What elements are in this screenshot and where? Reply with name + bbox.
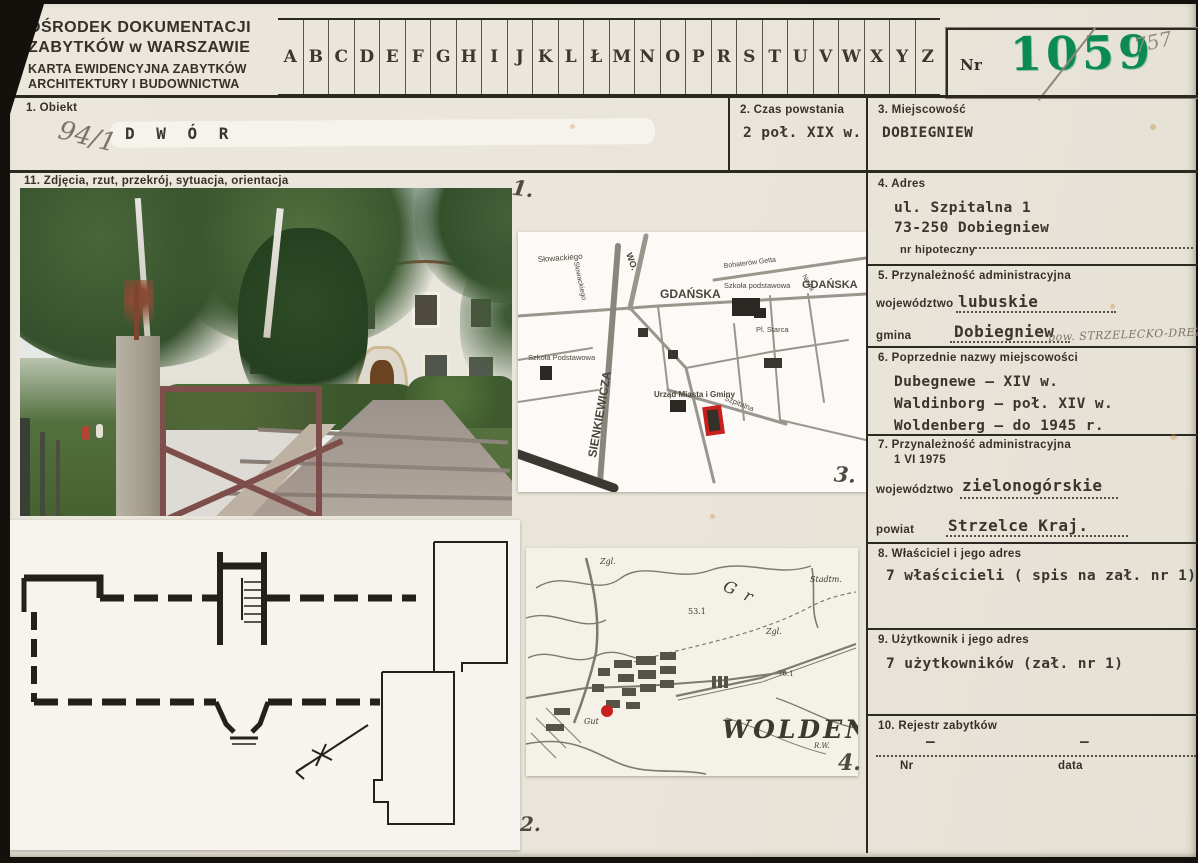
card-type-line2: ARCHITEKTURY I BUDOWNICTWA [28,77,239,92]
highlighted-building [704,407,722,434]
register-dash-2: – [1080,734,1089,750]
alphabet-index-strip: ABCDEFGHIJKLŁMNOPRSTUVWXYZ [278,18,940,96]
former-name-2: Waldinborg – poł. XIV w. [894,396,1113,412]
nr-hipoteczny-label: nr hipoteczny [900,244,975,256]
section10-label: 10. Rejestr zabytków [878,720,997,732]
alphabet-letter: N [635,20,661,94]
powiat-pencil-note: pow. STRZELECKO-DREZD. [1048,325,1198,344]
photo-fence [56,440,60,516]
section8-label: 8. Właściciel i jego adres [878,548,1021,560]
owner-value: 7 właścicieli ( spis na zał. nr 1) [886,568,1196,584]
alphabet-letter: M [610,20,636,94]
dotted-line [975,246,1193,249]
dotted-line [946,534,1128,537]
dotted-line [960,496,1118,499]
topo-lake-label: Gr [720,576,765,610]
alphabet-letter: W [839,20,865,94]
topo-label: Zgl. [599,557,616,566]
address-line2: 73-250 Dobiegniew [894,220,1049,236]
wojewodztwo-label: województwo [876,298,953,310]
topo-label: Zgl. [765,627,782,636]
map-street-label: Bohaterów Getta [723,257,776,270]
map-poi-label: Szkoła Podstawowa [528,353,596,362]
topo-label: Gut [584,717,600,726]
map-street-label: GDAŃSKA [660,286,721,301]
map-street-label: Słowackiego [572,261,587,301]
topo-highlight-dot [601,705,613,717]
city-map: WO. Słowackiego Słowackiego GDAŃSKA GDAŃ… [518,232,866,492]
alphabet-letter: Y [890,20,916,94]
powiat-label: powiat [876,524,914,536]
city-map-sheet: WO. Słowackiego Słowackiego GDAŃSKA GDAŃ… [518,232,866,492]
alphabet-letter: F [406,20,432,94]
column-divider [866,98,868,853]
section3-label: 3. Miejscowość [878,104,966,116]
photo-post-finial [134,284,139,340]
user-value: 7 użytkowników (zał. nr 1) [886,656,1123,672]
section1-label: 1. Obiekt [26,102,77,114]
section5-label: 5. Przynależność administracyjna [878,270,1071,282]
card-type-line1: KARTA EWIDENCYJNA ZABYTKÓW [28,62,247,77]
alphabet-letter: U [788,20,814,94]
section9-label: 9. Użytkownik i jego adres [878,634,1029,646]
section7-label: 7. Przynależność administracyjna [878,439,1071,451]
alphabet-letter: X [865,20,891,94]
annotation-4: 4. [838,750,861,776]
divider [868,714,1198,716]
former-name-3: Woldenberg – do 1945 r. [894,418,1104,434]
map-poi-label: Urząd Miasta i Gminy [654,390,735,399]
divider [868,628,1198,630]
alphabet-letter: H [457,20,483,94]
topo-label: R.W. [813,742,830,750]
former-name-1: Dubegnewe – XIV w. [894,374,1058,390]
alphabet-letter: V [814,20,840,94]
map-poi-label: Pl. Starca [756,325,789,334]
alphabet-letter: Ł [584,20,610,94]
map-poi-label: Szkoła podstawowa [724,281,791,290]
photo-post-finial [124,280,154,338]
register-data-label: data [1058,760,1083,772]
miejscowosc-value: DOBIEGNIEW [882,125,973,141]
alphabet-letter: D [355,20,381,94]
wojewodztwo2-value: zielonogórskie [962,476,1102,495]
photo-fence [20,418,30,516]
card-paper: OŚRODEK DOKUMENTACJI ZABYTKÓW w WARSZAWI… [10,4,1196,857]
paper-stain [1150,124,1156,130]
org-name-line2: ZABYTKÓW w WARSZAWIE [28,38,250,58]
card-number-box: Nr 1059 757 [946,28,1198,98]
photo-gate-post [116,336,160,516]
paper-stain [1110,304,1115,309]
paper-stain [710,514,715,519]
margin-pencil-note: 94/1 [55,115,119,158]
topo-elevation: 70.1 [778,670,794,678]
annotation-2: 2. [520,812,541,836]
divider [868,542,1198,544]
section4-label: 4. Adres [878,178,925,190]
alphabet-letter: K [533,20,559,94]
alphabet-letter: L [559,20,585,94]
gmina-value: Dobiegniew [954,322,1054,341]
alphabet-letter: P [686,20,712,94]
topo-elevation: 53.1 [688,607,706,616]
site-photo [20,188,512,516]
map-street-label: WO. [624,251,640,271]
alphabet-letter: E [380,20,406,94]
alphabet-letter: T [763,20,789,94]
photo-figure [82,426,90,440]
floor-plan [10,520,520,850]
paper-stain [1170,434,1177,440]
czas-powstania-value: 2 poł. XIX w. [743,125,862,141]
photo-figure [96,424,103,438]
wojewodztwo-value: lubuskie [958,292,1038,311]
alphabet-letter: B [304,20,330,94]
alphabet-letter: Z [916,20,941,94]
section6-label: 6. Poprzednie nazwy miejscowości [878,352,1078,364]
alphabet-letter: R [712,20,738,94]
photo-fence [40,432,45,516]
alphabet-letter: C [329,20,355,94]
topo-label: Stadtm. [810,575,842,584]
annotation-3: 3. [833,461,857,487]
alphabet-letter: I [482,20,508,94]
alphabet-letter: A [278,20,304,94]
alphabet-letter: S [737,20,763,94]
floor-plan-sheet [10,520,520,850]
gmina-label: gmina [876,330,911,342]
map-street-label: SIENKIEWICZA [585,370,614,459]
section7-date-label: 1 VI 1975 [894,454,946,466]
dotted-line [876,754,1196,757]
dotted-line [956,310,1116,313]
divider [728,98,730,170]
scanned-card: OŚRODEK DOKUMENTACJI ZABYTKÓW w WARSZAWI… [0,0,1198,863]
powiat-value: Strzelce Kraj. [948,516,1088,535]
divider [868,264,1198,266]
org-name-line1: OŚRODEK DOKUMENTACJI [28,18,251,38]
paper-stain [570,124,575,129]
register-dash-1: – [926,734,935,750]
divider [868,434,1198,436]
section11-label: 11. Zdjęcia, rzut, przekrój, sytuacja, o… [24,175,289,187]
divider [10,95,1198,98]
wojewodztwo2-label: województwo [876,484,953,496]
alphabet-letter: O [661,20,687,94]
topo-map-sheet: WOLDENB Gr 53.1 70.1 Zgl. Zgl. Gut Stadt… [526,548,858,776]
register-nr-label: Nr [900,760,913,772]
address-line1: ul. Szpitalna 1 [894,200,1031,216]
divider [868,346,1198,348]
divider [10,170,1198,173]
topo-map: WOLDENB Gr 53.1 70.1 Zgl. Zgl. Gut Stadt… [526,548,858,776]
annotation-1: 1. [510,175,535,203]
section2-label: 2. Czas powstania [740,104,844,116]
topo-town-name: WOLDENB [722,715,858,744]
photo-gate [160,386,322,516]
alphabet-letter: J [508,20,534,94]
nr-label: Nr [960,56,982,74]
object-value: D W Ó R [125,124,234,143]
alphabet-letter: G [431,20,457,94]
